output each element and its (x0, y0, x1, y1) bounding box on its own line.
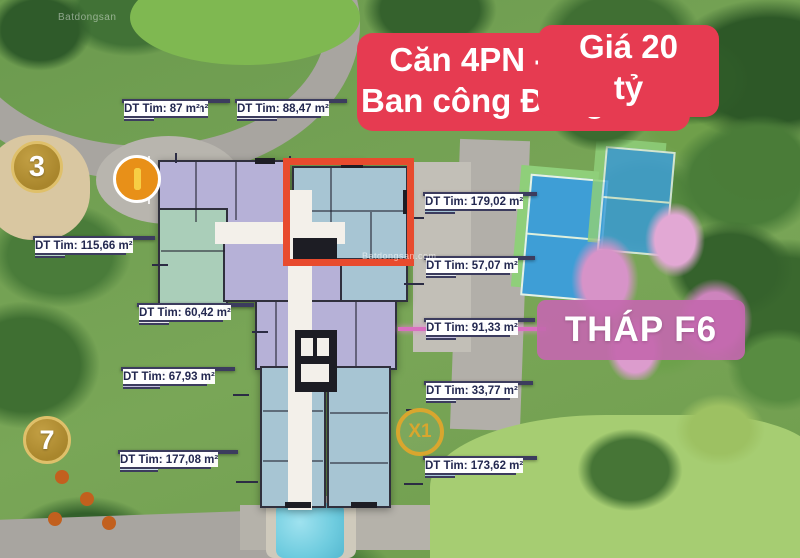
map-badge-x1: X1 (396, 408, 444, 456)
connector-ch3 (175, 153, 177, 163)
bar-icon (134, 168, 141, 190)
core-cell (301, 364, 329, 382)
connector-ch9 (404, 483, 423, 485)
unit-dt-tim: DT Tim: 179,02 m² (425, 194, 523, 209)
banner-price: Giá 20 tỷ (538, 25, 719, 117)
wall-segment (351, 502, 377, 508)
tower-tag-f6: THÁP F6 (537, 300, 745, 360)
map-badge-7: 7 (23, 416, 71, 464)
partition (355, 302, 357, 366)
planter (102, 516, 116, 530)
unit-label-ch-10: CH-10 DT TT: 157,48 m² DT Tim: 177,08 m² (118, 450, 238, 454)
amenity-bars-icon (113, 155, 161, 203)
unit-label-ch-2: CH-2 DT TT: 101,82 m² DT Tim: 115,66 m² (33, 236, 155, 240)
unit-label-ch-7: CH-7 DT TT: 80,92 m² DT Tim: 91,33 m² (424, 318, 535, 322)
partition (235, 162, 237, 220)
unit-dt-tim: DT Tim: 88,47 m² (237, 101, 329, 116)
unit-label-ch-8: CH-8 DT TT: 28,93 m² DT Tim: 33,77 m² (424, 381, 533, 385)
highlight-rectangle-4pn-unit (283, 158, 414, 266)
site-plan-image: 3 7 X1 CH-3 DT TT: 76,16 m² DT Tim: 87 m… (0, 0, 800, 558)
partition (195, 162, 197, 222)
unit-dt-tim: DT Tim: 87 m² (124, 101, 200, 116)
tower-tag-text: THÁP F6 (565, 310, 717, 350)
planter (48, 512, 62, 526)
partition (330, 462, 388, 464)
unit-dt-tim: DT Tim: 177,08 m² (120, 452, 218, 467)
map-badge-3: 3 (11, 141, 63, 193)
unit-label-ch-6: CH-6 DT TT: 49,77 m² DT Tim: 57,07 m² (424, 256, 535, 260)
unit-dt-tim: DT Tim: 57,07 m² (426, 258, 518, 273)
badge-number: 7 (39, 425, 54, 456)
unit-label-ch-3: CH-3 DT TT: 76,16 m² DT Tim: 87 m² (122, 99, 230, 103)
wall-segment (255, 158, 275, 164)
wall-segment (285, 502, 311, 508)
unit-dt-tim: DT Tim: 60,42 m² (139, 305, 231, 320)
unit-dt-tim: DT Tim: 67,93 m² (123, 369, 215, 384)
unit-label-ch-11: CH-11 DT TT: 59,12 m² DT Tim: 67,93 m² (121, 367, 235, 371)
partition (275, 302, 277, 366)
watermark: Batdongsan (58, 12, 116, 23)
unit-dt-tim: DT Tim: 33,77 m² (426, 383, 518, 398)
watermark-center: Batdongsan.com (362, 251, 437, 261)
unit-dt-tim: DT Tim: 91,33 m² (426, 320, 518, 335)
unit-label-ch-9: CH-9 DT TT: 155,15 m² DT Tim: 173,62 m² (423, 456, 537, 460)
badge-number: 3 (29, 151, 45, 184)
connector-ch2 (152, 264, 168, 266)
partition (161, 250, 225, 252)
planter (55, 470, 69, 484)
partition (330, 412, 388, 414)
badge-number: X1 (408, 421, 431, 443)
connector-ch10 (236, 481, 258, 483)
connector-ch11 (233, 394, 249, 396)
unit-label-ch-5: CH-5 DT TT: 159,87 m² DT Tim: 179,02 m² (423, 192, 537, 196)
unit-label-ch-1: CH-1 DT TT: 53,88 m² DT Tim: 60,42 m² (137, 303, 254, 307)
unit-dt-tim: DT Tim: 115,66 m² (35, 238, 133, 253)
connector-ch1 (252, 331, 268, 333)
core-cell (301, 338, 313, 356)
connector-ch6 (404, 283, 424, 285)
core-cell (317, 338, 329, 356)
unit-dt-tim: DT Tim: 173,62 m² (425, 458, 523, 473)
unit-label-ch-3a: CH-3A DT TT: 78,87 m² DT Tim: 88,47 m² (235, 99, 347, 103)
planter (80, 492, 94, 506)
